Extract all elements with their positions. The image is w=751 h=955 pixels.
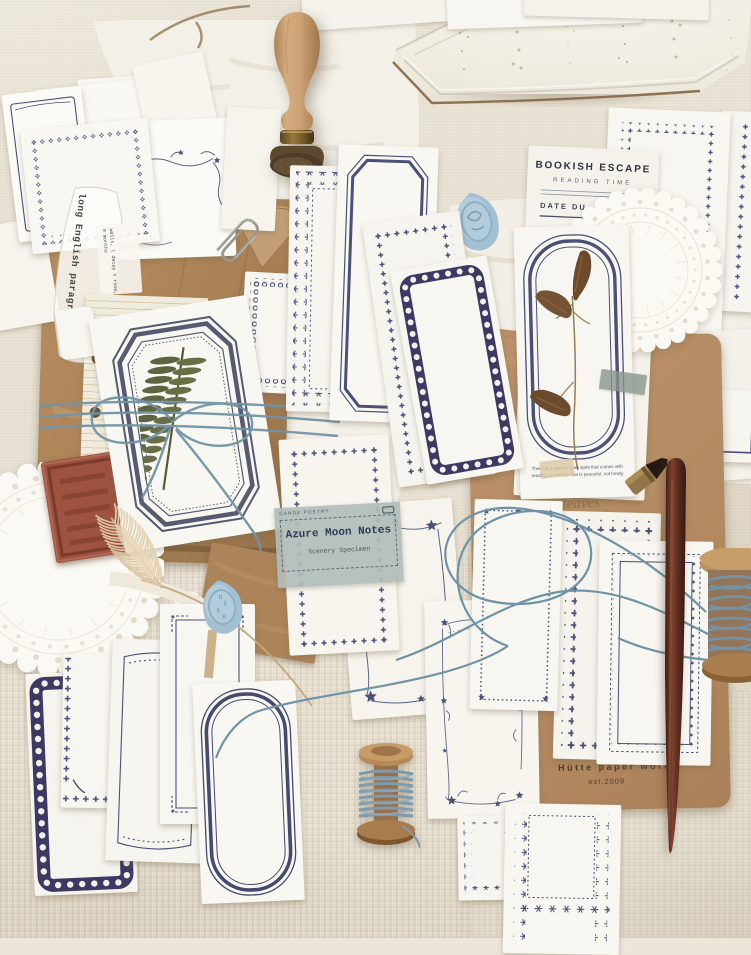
svg-text:est.2009: est.2009: [588, 776, 625, 786]
